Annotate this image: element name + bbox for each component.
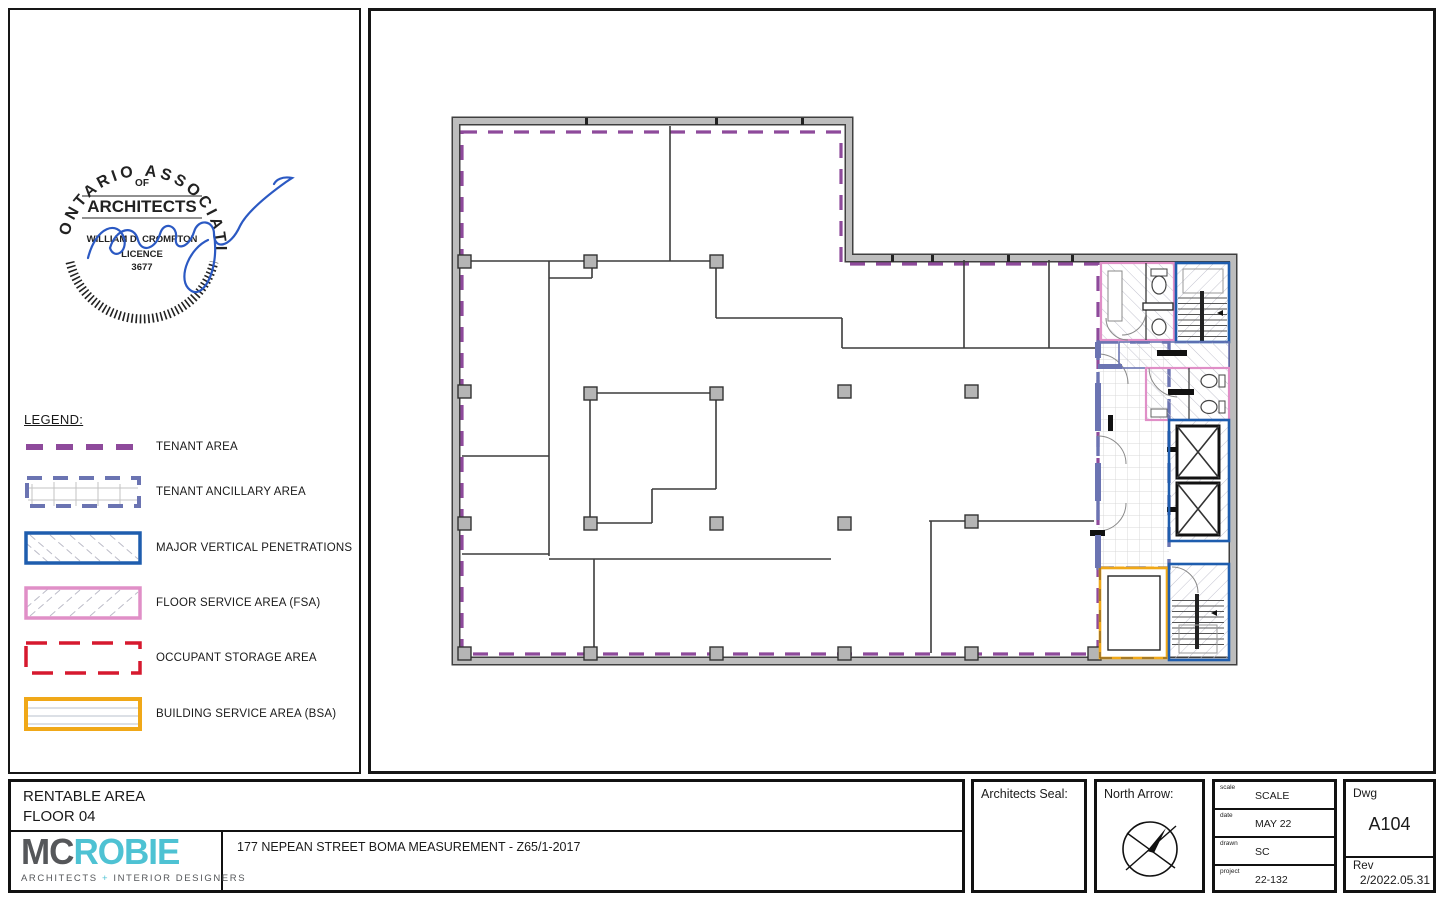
bsa-swatch-icon [24, 696, 142, 732]
legend-item-occupant-storage: OCCUPANT STORAGE AREA [24, 641, 354, 675]
info-table: scale SCALE date MAY 22 drawn SC project… [1212, 779, 1337, 893]
legend-item-building-service-area: BUILDING SERVICE AREA (BSA) [24, 696, 354, 732]
seal-architects: ARCHITECTS [87, 197, 197, 216]
drawing-title-line2: FLOOR 04 [23, 807, 950, 827]
left-panel: ONTARIO ASSOCIATION OF ARCHITECTS WILLIA… [8, 8, 361, 774]
dwg-box: Dwg A104 Rev 2/2022.05.31 [1343, 779, 1436, 893]
legend-item-floor-service-area: FLOOR SERVICE AREA (FSA) [24, 586, 354, 620]
tenant-area-swatch-icon [24, 442, 142, 452]
mvp-swatch-icon [24, 531, 142, 565]
washroom-north [1101, 263, 1174, 340]
architect-seal-stamp: ONTARIO ASSOCIATION OF ARCHITECTS WILLIA… [30, 120, 360, 330]
tenant-area-boundary [462, 132, 1098, 654]
legend-label: OCCUPANT STORAGE AREA [156, 652, 317, 664]
interior-walls [462, 126, 1098, 653]
project-title: 177 NEPEAN STREET BOMA MEASUREMENT - Z65… [223, 832, 962, 890]
legend-label: BUILDING SERVICE AREA (BSA) [156, 708, 336, 720]
legend-label: TENANT AREA [156, 441, 238, 453]
building-service-room [1100, 568, 1169, 658]
plus-icon: + [102, 873, 109, 884]
logo-text-secondary: ROBIE [73, 833, 179, 873]
rev-label: Rev [1353, 860, 1373, 872]
washroom-mid [1146, 368, 1229, 420]
legend-item-tenant-ancillary: TENANT ANCILLARY AREA [24, 474, 354, 510]
titleblock-main: RENTABLE AREA FLOOR 04 MCROBIE ARCHITECT… [8, 779, 965, 893]
stairwell-south [1169, 564, 1229, 660]
seal-licence-label: LICENCE [121, 249, 163, 260]
structural-columns [458, 255, 1101, 660]
dwg-number: A104 [1346, 814, 1433, 835]
legend-label: TENANT ANCILLARY AREA [156, 486, 306, 498]
drawing-title: RENTABLE AREA FLOOR 04 [11, 782, 962, 832]
seal-of: OF [135, 178, 149, 189]
legend-item-tenant-area: TENANT AREA [24, 441, 354, 453]
rev-value: 2/2022.05.31 [1360, 873, 1430, 887]
rev-section: Rev 2/2022.05.31 [1346, 856, 1433, 890]
seal-licence-number: 3677 [131, 262, 152, 273]
info-row-drawn: drawn SC [1215, 838, 1334, 866]
elevator-shafts [1167, 420, 1229, 541]
core-vestibule [1119, 342, 1229, 368]
dwg-label: Dwg [1353, 786, 1377, 800]
legend-label: MAJOR VERTICAL PENETRATIONS [156, 542, 352, 554]
tenant-ancillary-swatch-icon [24, 474, 142, 510]
fsa-swatch-icon [24, 586, 142, 620]
info-row-scale: scale SCALE [1215, 782, 1334, 810]
info-row-date: date MAY 22 [1215, 810, 1334, 838]
legend: LEGEND: TENANT AREA TENANT ANCILLARY ARE… [24, 412, 354, 753]
north-arrow-label: North Arrow: [1104, 787, 1173, 801]
legend-item-major-vertical-penetrations: MAJOR VERTICAL PENETRATIONS [24, 531, 354, 565]
architects-seal-label: Architects Seal: [981, 787, 1068, 801]
seal-architect-name: WILLIAM D. CROMPTON [87, 234, 198, 245]
north-arrow-box: North Arrow: [1094, 779, 1205, 893]
mullion-ticks [585, 118, 1074, 262]
legend-label: FLOOR SERVICE AREA (FSA) [156, 597, 320, 609]
floor-plan [371, 11, 1433, 771]
firm-tagline: ARCHITECTS + INTERIOR DESIGNERS [21, 873, 221, 884]
architects-seal-box: Architects Seal: [971, 779, 1087, 893]
floor-plan-panel [368, 8, 1436, 774]
info-row-project: project 22-132 [1215, 866, 1334, 892]
occupant-storage-swatch-icon [24, 641, 142, 675]
firm-logo: MCROBIE ARCHITECTS + INTERIOR DESIGNERS [11, 832, 223, 890]
drawing-sheet: ONTARIO ASSOCIATION OF ARCHITECTS WILLIA… [0, 0, 1443, 900]
legend-title: LEGEND: [24, 412, 354, 427]
stairwell-north [1176, 263, 1229, 342]
north-arrow-icon [1100, 810, 1200, 888]
logo-text-primary: MC [21, 833, 73, 873]
drawing-title-line1: RENTABLE AREA [23, 787, 950, 807]
